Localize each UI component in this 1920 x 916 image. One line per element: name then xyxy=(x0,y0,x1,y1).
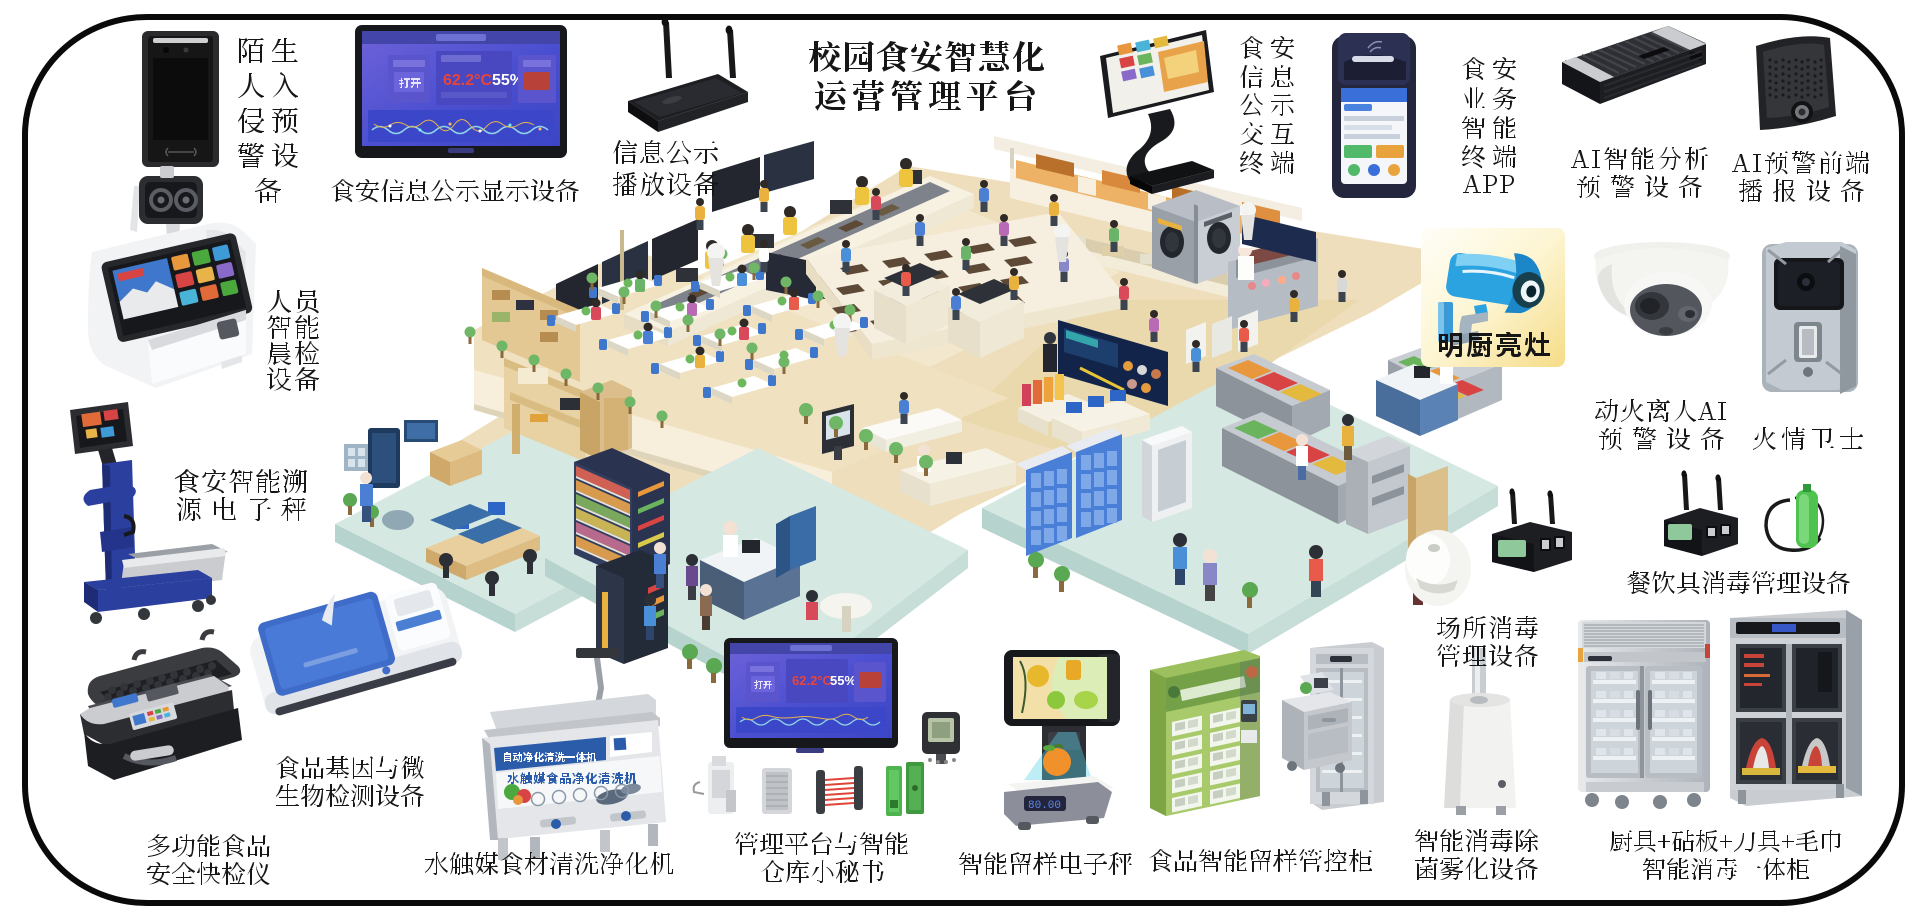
svg-text:80.00: 80.00 xyxy=(1028,800,1061,812)
svg-text:55%: 55% xyxy=(830,673,856,688)
svg-text:62.2°C: 62.2°C xyxy=(443,72,493,89)
svg-text:62.2°C: 62.2°C xyxy=(792,673,833,688)
